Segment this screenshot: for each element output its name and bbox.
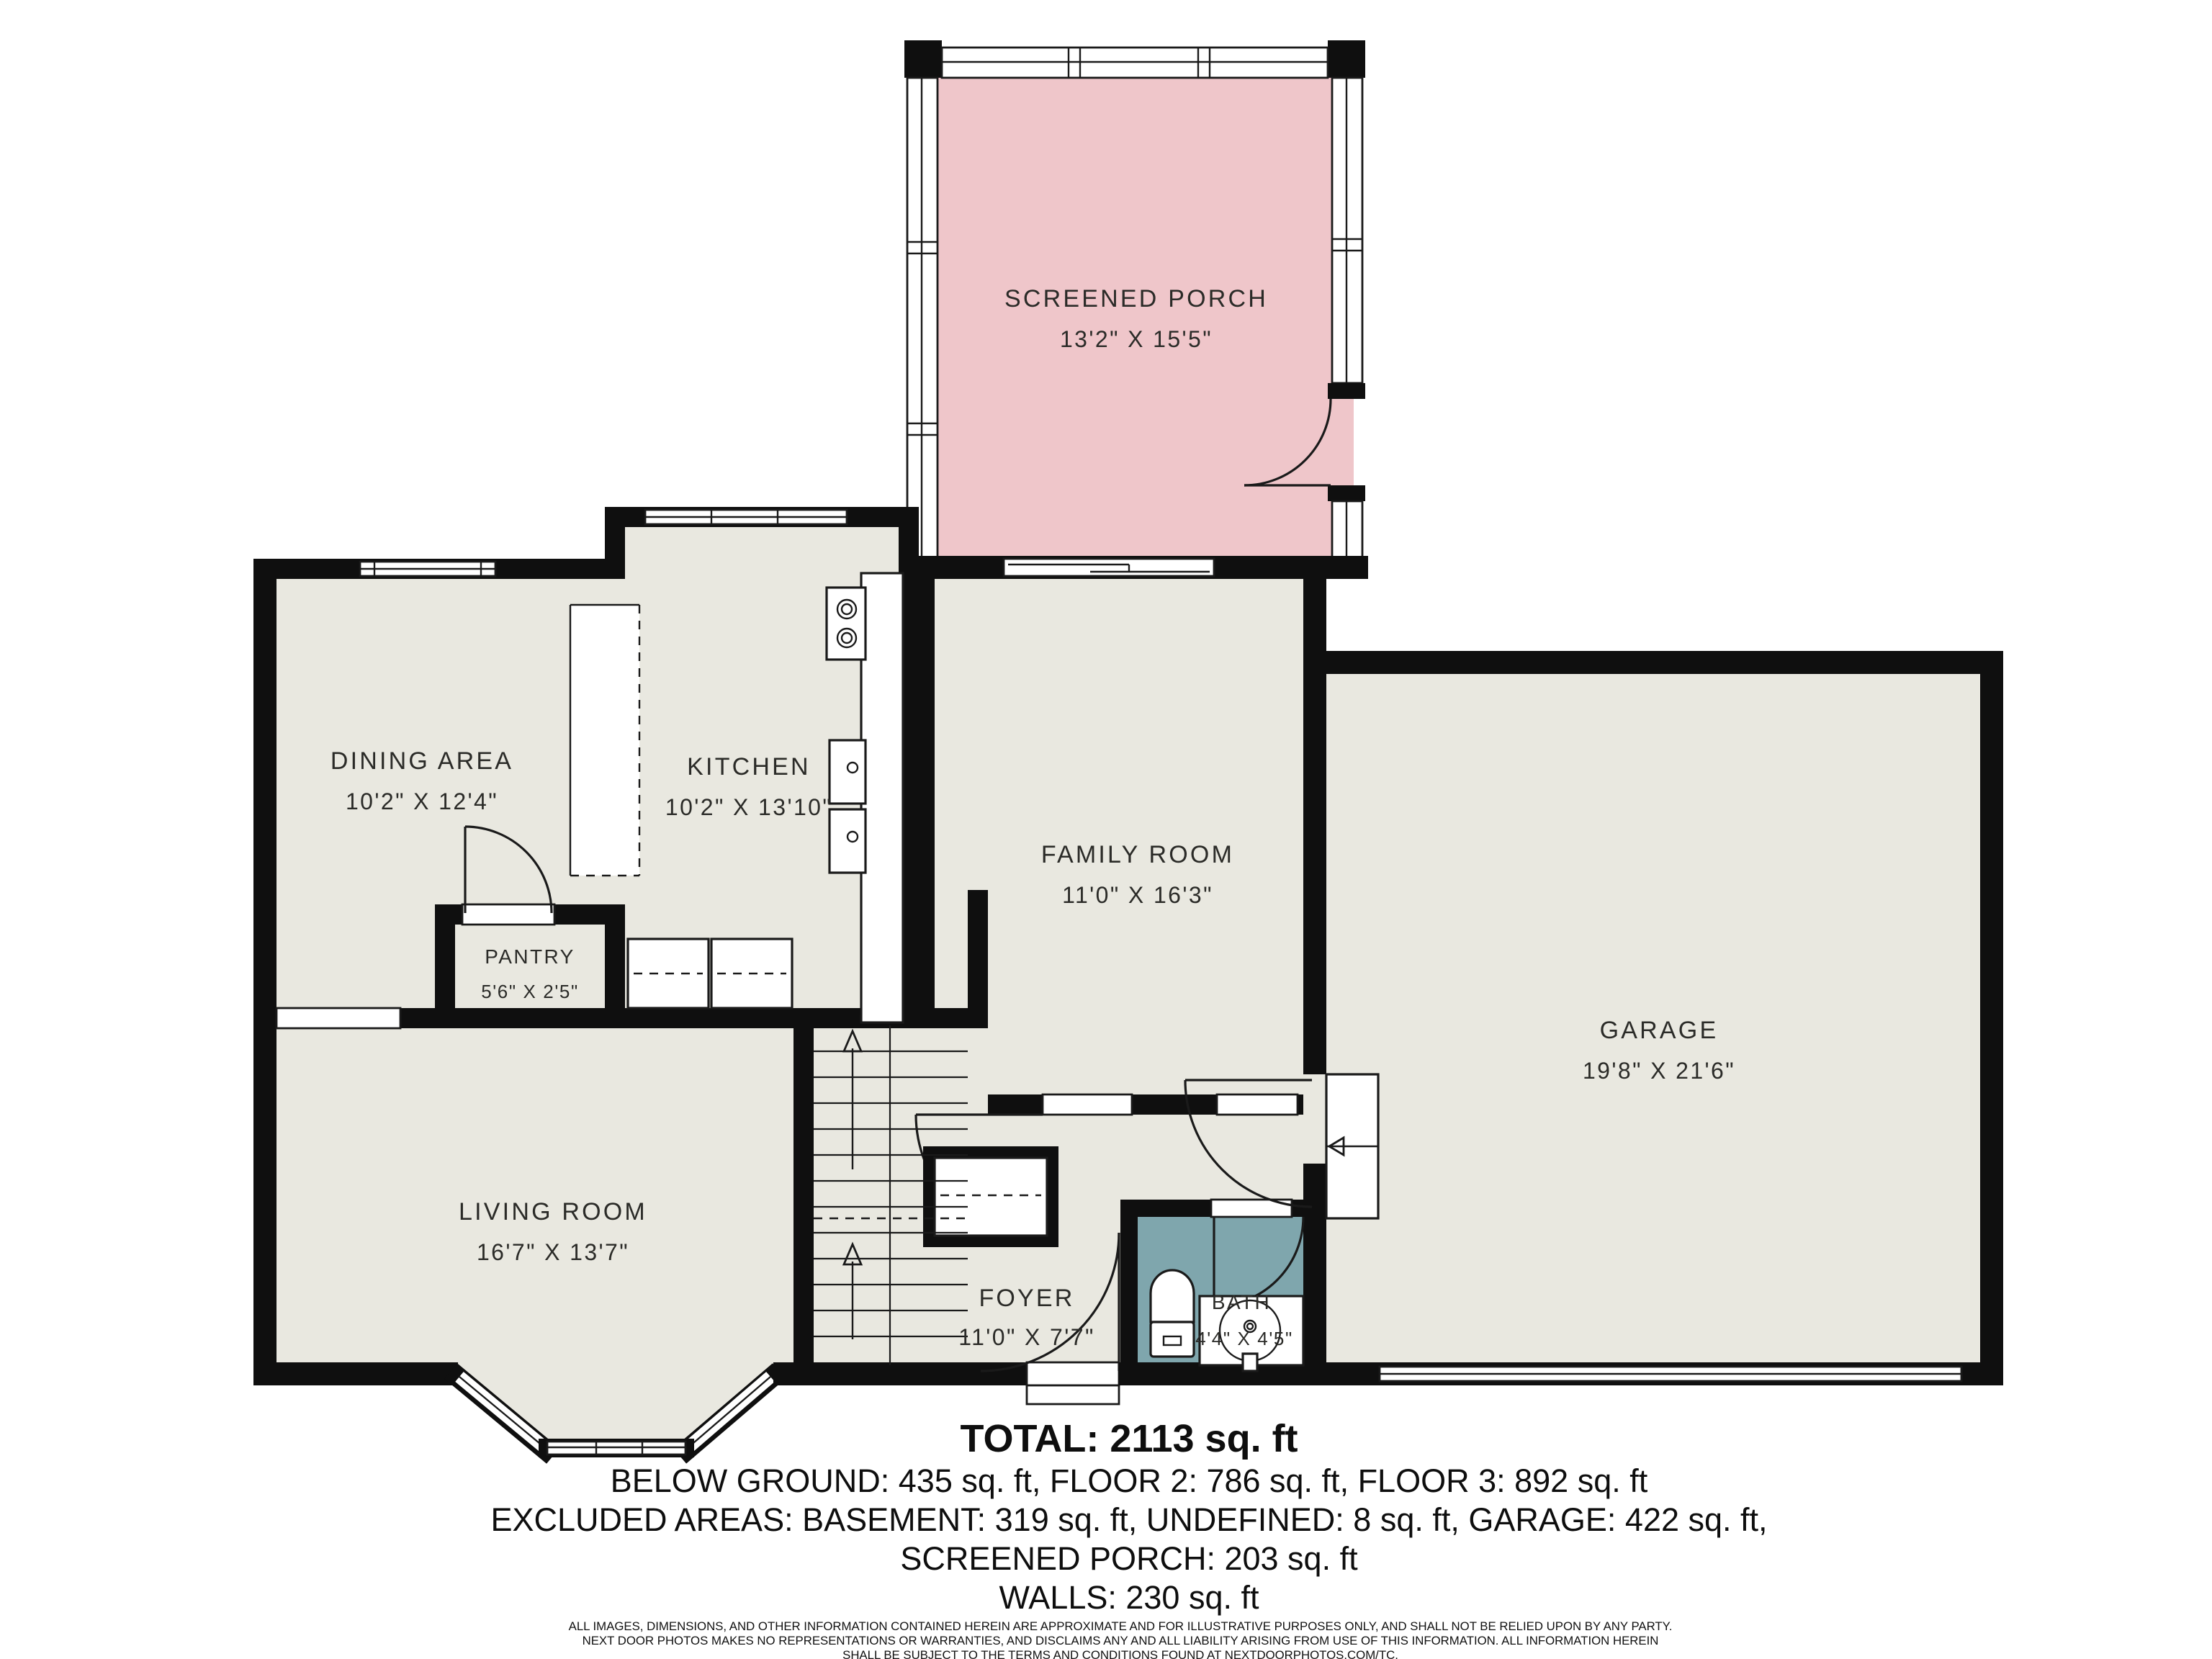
room-dims-foyer: 11'0" X 7'7": [958, 1324, 1094, 1350]
room-dims-pantry: 5'6" X 2'5": [481, 981, 579, 1002]
dining-window: [360, 562, 495, 576]
room-label-kitchen: KITCHEN: [687, 753, 811, 781]
floors-area-text: BELOW GROUND: 435 sq. ft, FLOOR 2: 786 s…: [611, 1462, 1648, 1499]
room-dims-dining: 10'2" X 12'4": [346, 788, 498, 814]
room-label-foyer: FOYER: [979, 1285, 1074, 1312]
stove-icon: [827, 588, 866, 660]
cased-opening-dining-living: [276, 1008, 400, 1028]
room-dims-living: 16'7" X 13'7": [477, 1239, 629, 1265]
excluded-area-text: EXCLUDED AREAS: BASEMENT: 319 sq. ft, UN…: [490, 1501, 1767, 1538]
room-dims-family: 11'0" X 16'3": [1062, 882, 1213, 908]
porch-sliding-door: [1004, 559, 1214, 576]
disclaimer-line-3: SHALL BE SUBJECT TO THE TERMS AND CONDIT…: [842, 1648, 1398, 1659]
wall-kitchen-right: [899, 507, 919, 579]
room-label-pantry: PANTRY: [485, 945, 575, 968]
room-label-dining: DINING AREA: [331, 747, 513, 775]
wall-kitchen-family: [903, 570, 935, 1025]
room-label-family: FAMILY ROOM: [1041, 841, 1234, 868]
kitchen-window: [645, 510, 847, 524]
total-area-text: TOTAL: 2113 sq. ft: [960, 1417, 1298, 1460]
wall-garage-right: [1980, 651, 2003, 1385]
entry-landing: [1326, 1074, 1378, 1218]
wall-left: [253, 559, 276, 1385]
room-label-screened-porch: SCREENED PORCH: [1004, 285, 1268, 313]
room-dims-garage: 19'8" X 21'6": [1583, 1058, 1735, 1084]
disclaimer-line-2: NEXT DOOR PHOTOS MAKES NO REPRESENTATION…: [583, 1634, 1659, 1647]
porch-corner-post: [1328, 40, 1365, 78]
room-label-garage: GARAGE: [1600, 1017, 1719, 1044]
walls-area-text: WALLS: 230 sq. ft: [999, 1579, 1259, 1616]
room-label-living: LIVING ROOM: [459, 1198, 647, 1226]
porch-screen-right: [1328, 78, 1365, 559]
disclaimer: ALL IMAGES, DIMENSIONS, AND OTHER INFORM…: [569, 1619, 1673, 1659]
porch-screen-top: [942, 48, 1328, 78]
disclaimer-line-1: ALL IMAGES, DIMENSIONS, AND OTHER INFORM…: [569, 1619, 1673, 1633]
wall-stair-left: [793, 1025, 814, 1365]
wall-garage-top: [1303, 651, 2003, 674]
opening-hall: [1217, 1094, 1298, 1115]
toilet-icon: [1151, 1270, 1194, 1357]
floor-plan-page: SCREENED PORCH 13'2" X 15'5" DINING AREA…: [0, 0, 2212, 1659]
excluded-porch-text: SCREENED PORCH: 203 sq. ft: [900, 1540, 1358, 1577]
opening-foyer: [1043, 1094, 1132, 1115]
room-label-bath: BATH: [1212, 1291, 1271, 1313]
wall-stair-right: [968, 890, 988, 1028]
pantry-doorway: [462, 904, 554, 925]
porch-screen-left: [907, 78, 938, 559]
wall-bottom-center: [773, 1362, 1030, 1385]
kitchen-island: [570, 605, 639, 876]
porch-corner-post: [904, 40, 942, 78]
wall-garage-left: [1303, 570, 1326, 1385]
room-dims-bath: 4'4" X 4'5": [1195, 1328, 1293, 1349]
floor-plan-canvas: SCREENED PORCH 13'2" X 15'5" DINING AREA…: [0, 0, 2212, 1659]
wall-bottom-left: [253, 1362, 458, 1385]
room-dims-screened-porch: 13'2" X 15'5": [1060, 326, 1213, 352]
room-dims-kitchen: 10'2" X 13'10": [665, 794, 832, 820]
garage-door: [1380, 1367, 1961, 1381]
